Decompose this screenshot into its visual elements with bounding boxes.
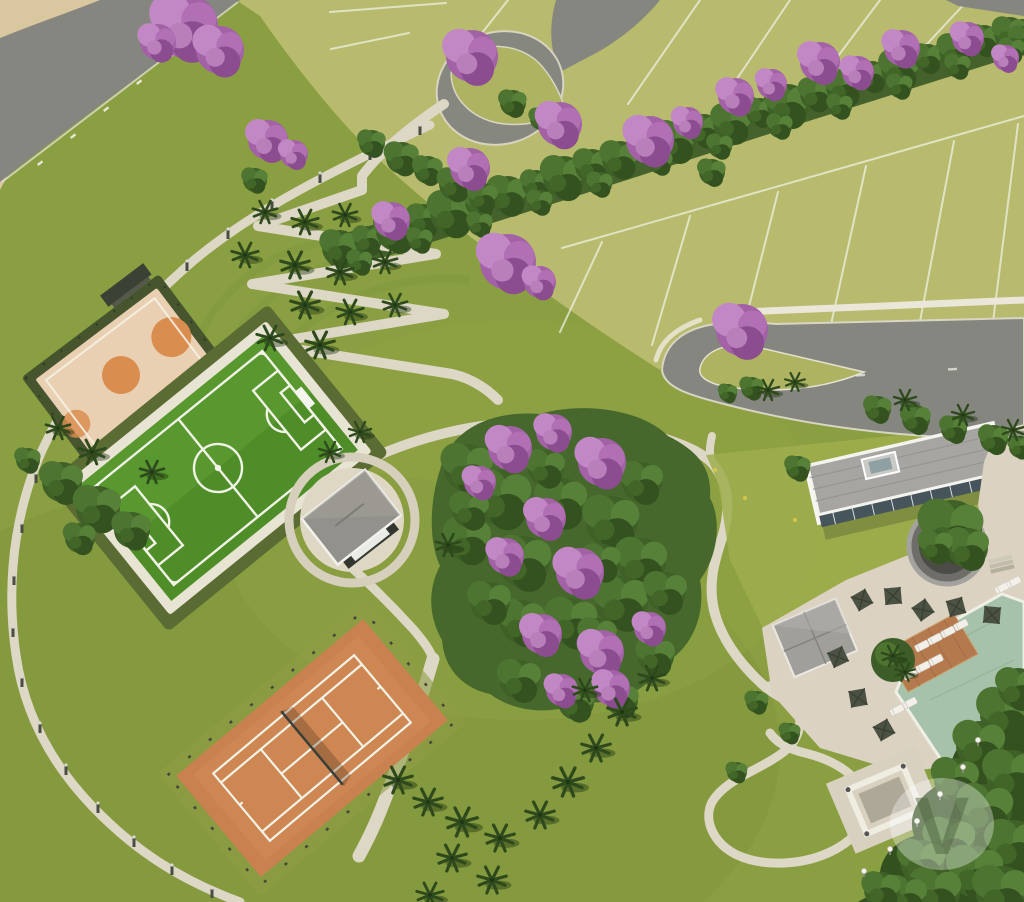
path-bollard [11, 625, 14, 637]
path-bollard [20, 675, 23, 687]
flower-fleck [743, 496, 747, 500]
path-bollard [226, 227, 229, 239]
road-marking [856, 374, 865, 377]
path-bollard [34, 471, 37, 483]
path-bollard [20, 521, 23, 533]
green-tree [972, 865, 1024, 902]
path-bollard [38, 721, 41, 733]
path-bollard [210, 886, 213, 898]
path-bollard [185, 259, 188, 271]
flower-fleck [793, 518, 797, 522]
path-bollard [318, 171, 321, 183]
flower-fleck [713, 468, 717, 472]
path-bollard [418, 123, 421, 135]
path-bollard [132, 835, 135, 847]
path-bollard [12, 573, 15, 585]
path-bollard [96, 801, 99, 813]
aerial-render: V [0, 0, 1024, 902]
watermark-letter: V [915, 781, 970, 872]
road-marking [948, 368, 957, 371]
path-bollard [170, 863, 173, 875]
garden-kiosk [289, 457, 415, 583]
path-bollard [64, 763, 67, 775]
green-tree [861, 871, 901, 902]
scene-svg: V [0, 0, 1024, 902]
